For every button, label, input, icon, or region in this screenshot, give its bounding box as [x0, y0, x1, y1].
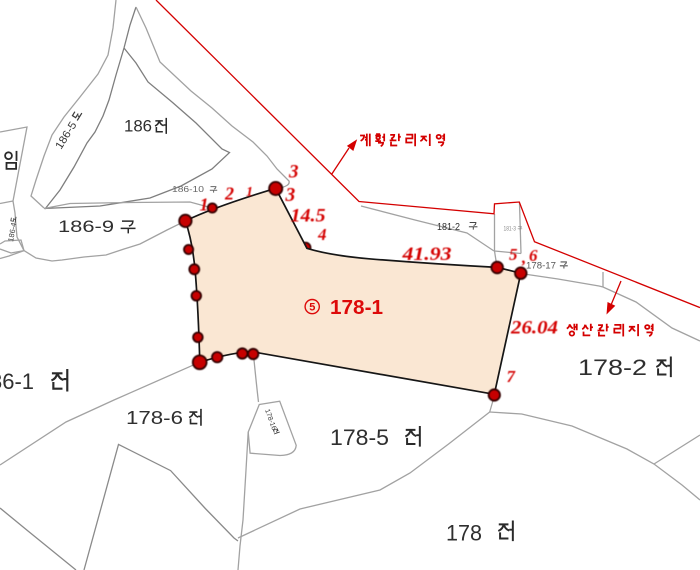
svg-text:178-1: 178-1: [330, 297, 383, 319]
svg-text:86-1: 86-1: [0, 369, 34, 394]
svg-text:178-2: 178-2: [578, 355, 647, 380]
svg-text:1: 1: [246, 185, 253, 200]
svg-text:6: 6: [529, 246, 538, 265]
svg-text:41.93: 41.93: [401, 245, 451, 265]
svg-text:2: 2: [224, 184, 234, 204]
svg-text:1: 1: [200, 195, 209, 215]
svg-text:26.04: 26.04: [510, 318, 558, 339]
svg-text:3: 3: [288, 162, 299, 183]
svg-text:178-5: 178-5: [330, 425, 389, 450]
svg-text:,: ,: [521, 248, 526, 267]
svg-text:178: 178: [446, 521, 482, 546]
svg-text:4: 4: [317, 225, 327, 244]
svg-text:181-2: 181-2: [437, 222, 460, 233]
svg-text:3: 3: [285, 185, 296, 206]
svg-text:14.5: 14.5: [291, 206, 327, 227]
svg-text:5: 5: [309, 302, 315, 314]
svg-text:5: 5: [509, 245, 518, 264]
svg-text:181-3: 181-3: [504, 227, 517, 233]
svg-text:178-6: 178-6: [126, 408, 183, 428]
svg-text:186-9: 186-9: [58, 217, 114, 236]
svg-text:186-10: 186-10: [172, 185, 205, 194]
svg-text:186: 186: [124, 117, 152, 136]
